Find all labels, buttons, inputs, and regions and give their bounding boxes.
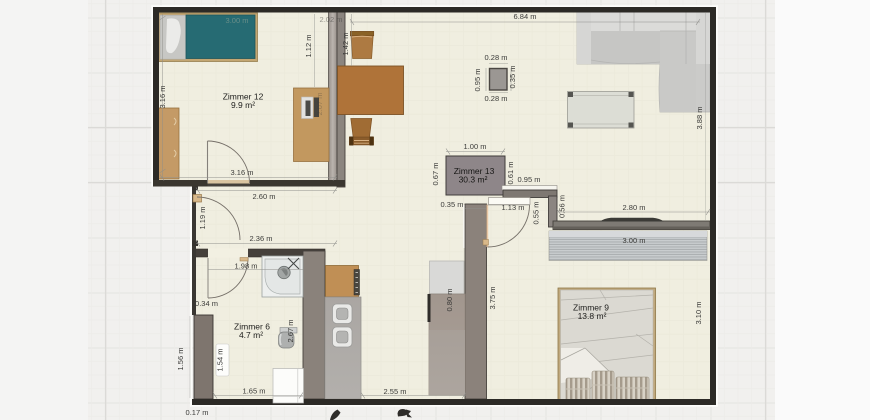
svg-text:1.12 m: 1.12 m bbox=[304, 35, 313, 58]
svg-text:0.55 m: 0.55 m bbox=[532, 202, 541, 225]
svg-text:0.95 m: 0.95 m bbox=[518, 175, 541, 184]
svg-text:0.34 m: 0.34 m bbox=[195, 299, 218, 308]
svg-text:0.28 m: 0.28 m bbox=[485, 94, 508, 103]
svg-text:0.80 m: 0.80 m bbox=[445, 289, 454, 312]
svg-text:2.67 m: 2.67 m bbox=[286, 320, 295, 343]
svg-text:6.84 m: 6.84 m bbox=[514, 12, 537, 21]
svg-text:2.36 m: 2.36 m bbox=[250, 234, 273, 243]
svg-text:1.00 m: 1.00 m bbox=[464, 142, 487, 151]
svg-text:3.00 m: 3.00 m bbox=[623, 236, 646, 245]
svg-text:1.56 m: 1.56 m bbox=[176, 348, 185, 371]
svg-text:3.16 m: 3.16 m bbox=[231, 168, 254, 177]
svg-text:0.95 m: 0.95 m bbox=[473, 69, 482, 92]
svg-text:9.9 m²: 9.9 m² bbox=[231, 100, 255, 110]
svg-text:0.17 m: 0.17 m bbox=[186, 408, 209, 417]
svg-text:3.10 m: 3.10 m bbox=[694, 302, 703, 325]
svg-text:0.35 m: 0.35 m bbox=[508, 66, 517, 89]
svg-text:0.61 m: 0.61 m bbox=[506, 162, 515, 185]
svg-text:1.54 m: 1.54 m bbox=[216, 349, 225, 372]
svg-text:1.13 m: 1.13 m bbox=[502, 203, 525, 212]
svg-text:1.98 m: 1.98 m bbox=[235, 262, 258, 271]
svg-text:4.7 m²: 4.7 m² bbox=[239, 330, 263, 340]
svg-text:3.00 m: 3.00 m bbox=[226, 16, 249, 25]
svg-text:3.16 m: 3.16 m bbox=[158, 86, 167, 109]
svg-text:0.28 m: 0.28 m bbox=[485, 53, 508, 62]
svg-text:30.3 m²: 30.3 m² bbox=[459, 175, 488, 185]
svg-text:2.02 m: 2.02 m bbox=[320, 15, 343, 24]
svg-text:0.35 m: 0.35 m bbox=[441, 200, 464, 209]
svg-text:0.56 m: 0.56 m bbox=[558, 195, 567, 218]
svg-text:13.8 m²: 13.8 m² bbox=[578, 311, 607, 321]
svg-text:2.60 m: 2.60 m bbox=[253, 192, 276, 201]
svg-text:2.07 m: 2.07 m bbox=[315, 93, 324, 116]
svg-text:2.55 m: 2.55 m bbox=[384, 387, 407, 396]
svg-text:1.19 m: 1.19 m bbox=[198, 207, 207, 230]
svg-text:3.88 m: 3.88 m bbox=[695, 107, 704, 130]
svg-text:1.65 m: 1.65 m bbox=[243, 387, 266, 396]
svg-text:2.80 m: 2.80 m bbox=[623, 203, 646, 212]
svg-text:0.67 m: 0.67 m bbox=[431, 163, 440, 186]
svg-text:3.75 m: 3.75 m bbox=[488, 287, 497, 310]
svg-text:1.42 m: 1.42 m bbox=[341, 33, 350, 56]
